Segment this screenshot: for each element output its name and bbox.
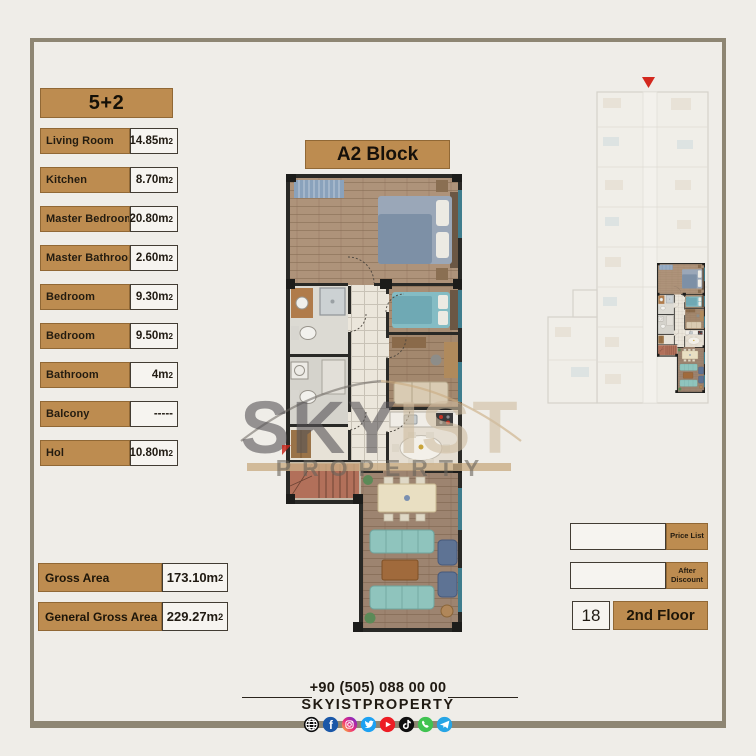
brand-name: SKYISTPROPERTY [0, 697, 756, 713]
svg-text:f: f [329, 719, 333, 732]
totals-table: Gross Area173.10m2General Gross Area229.… [38, 563, 228, 641]
room-label: Kitchen [40, 167, 130, 193]
tiktok-icon[interactable] [398, 716, 415, 733]
footer: +90 (505) 088 00 00 SKYISTPROPERTY f [0, 680, 756, 733]
unit-location-marker [642, 77, 655, 88]
room-area-value: 10.80m2 [130, 440, 178, 466]
room-label: Bedroom [40, 323, 130, 349]
room-area-value: 8.70m2 [130, 167, 178, 193]
unit-number: 18 [572, 601, 610, 630]
room-area-value: 2.60m2 [130, 245, 178, 271]
room-label: Living Room [40, 128, 130, 154]
table-row: Bedroom9.30m2 [40, 284, 178, 310]
floor-label: 2nd Floor [613, 601, 708, 630]
table-row: Living Room14.85m2 [40, 128, 178, 154]
table-row: Balcony----- [40, 401, 178, 427]
total-row: Gross Area173.10m2 [38, 563, 228, 592]
room-label: Balcony [40, 401, 130, 427]
room-area-value: 14.85m2 [130, 128, 178, 154]
table-row: Kitchen8.70m2 [40, 167, 178, 193]
room-area-value: 9.30m2 [130, 284, 178, 310]
total-value: 173.10m2 [162, 563, 228, 592]
room-area-value: 4m2 [130, 362, 178, 388]
room-label: Master Bathroom [40, 245, 130, 271]
after-discount-label: After Discount [666, 562, 708, 589]
block-title: A2 Block [305, 140, 450, 169]
room-area-value: ----- [130, 401, 178, 427]
table-row: Hol10.80m2 [40, 440, 178, 466]
twitter-icon[interactable] [360, 716, 377, 733]
total-value: 229.27m2 [162, 602, 228, 631]
room-label: Bathroom [40, 362, 130, 388]
facebook-icon[interactable]: f [322, 716, 339, 733]
youtube-icon[interactable] [379, 716, 396, 733]
room-area-value: 20.80m2 [130, 206, 178, 232]
room-label: Master Bedroom [40, 206, 130, 232]
total-label: Gross Area [38, 563, 162, 592]
table-row: Master Bedroom20.80m2 [40, 206, 178, 232]
telegram-icon[interactable] [436, 716, 453, 733]
total-row: General Gross Area229.27m2 [38, 602, 228, 631]
floor-plan-a2 [286, 174, 462, 632]
room-area-table: Living Room14.85m2Kitchen8.70m2Master Be… [40, 128, 178, 479]
unit-type-badge: 5+2 [40, 88, 173, 118]
price-list-label: Price List [666, 523, 708, 550]
table-row: Bathroom4m2 [40, 362, 178, 388]
room-label: Hol [40, 440, 130, 466]
room-area-value: 9.50m2 [130, 323, 178, 349]
whatsapp-icon[interactable] [417, 716, 434, 733]
after-discount-value-box[interactable] [570, 562, 666, 589]
table-row: Bedroom9.50m2 [40, 323, 178, 349]
price-list-value-box[interactable] [570, 523, 666, 550]
phone-number: +90 (505) 088 00 00 [0, 680, 756, 696]
building-overview-plan [545, 62, 715, 407]
table-row: Master Bathroom2.60m2 [40, 245, 178, 271]
website-icon[interactable] [303, 716, 320, 733]
total-label: General Gross Area [38, 602, 162, 631]
room-label: Bedroom [40, 284, 130, 310]
instagram-icon[interactable] [341, 716, 358, 733]
social-icons: f [0, 716, 756, 733]
